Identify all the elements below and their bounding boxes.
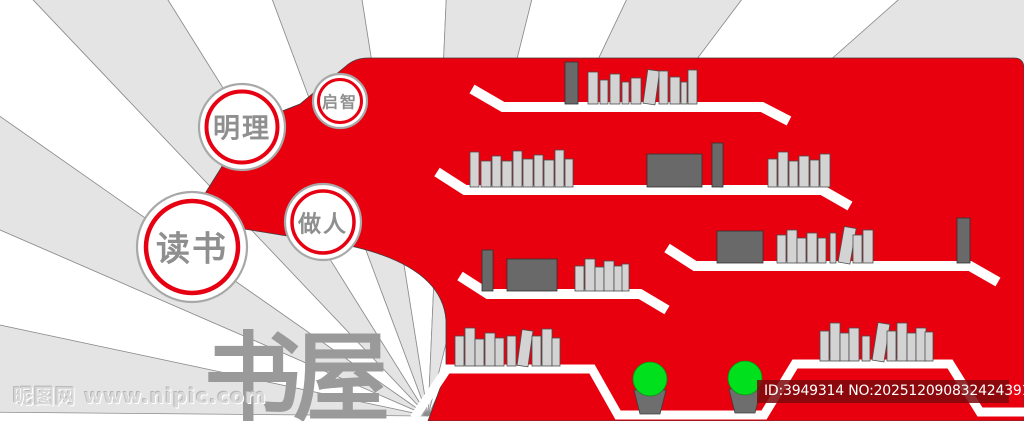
book [604, 261, 614, 291]
book [481, 161, 491, 187]
book [787, 230, 797, 263]
book [830, 233, 836, 263]
book [820, 331, 829, 361]
book [807, 233, 817, 263]
book [495, 338, 504, 366]
book [659, 71, 668, 104]
culture-wall-design: 读书 明理 做人 启智 书屋 昵图网 www.nipic.com ID:3949… [0, 0, 1024, 421]
book [907, 333, 916, 361]
book [475, 339, 484, 366]
book [513, 151, 522, 187]
book [797, 238, 806, 263]
book-dark [565, 62, 578, 104]
watermark: 昵图网 www.nipic.com [13, 380, 267, 409]
book [595, 267, 604, 291]
book [853, 235, 862, 263]
book [544, 160, 554, 187]
book [688, 70, 697, 104]
badge-label-dushu: 读书 [156, 222, 228, 271]
book [465, 328, 475, 366]
book [532, 336, 541, 366]
book [534, 155, 543, 187]
image-id-badge: ID:3949314 NO:20251209083242439108 [757, 380, 1009, 403]
book [849, 328, 859, 361]
badge-label-qizhi: 启智 [322, 89, 358, 113]
book [799, 156, 809, 187]
book [778, 152, 788, 187]
book [622, 264, 629, 291]
book [455, 336, 464, 366]
plant-foliage [633, 362, 667, 396]
book [507, 336, 516, 366]
book [818, 238, 826, 263]
book [542, 329, 552, 366]
book [622, 82, 629, 104]
book-dark [647, 154, 702, 187]
book [916, 328, 926, 361]
book [810, 160, 819, 187]
badge-label-zuoren: 做人 [298, 204, 348, 238]
book [485, 333, 495, 366]
book [887, 331, 896, 361]
book [610, 74, 620, 104]
wall-artwork-canvas [0, 0, 1024, 421]
book [502, 161, 512, 187]
book [789, 161, 798, 187]
book-dark [482, 250, 493, 291]
book [552, 338, 560, 366]
book-dark [717, 231, 763, 263]
book [777, 235, 786, 263]
book-dark [507, 259, 557, 291]
book-dark [957, 218, 970, 263]
book [840, 333, 849, 361]
book [768, 159, 777, 187]
book [862, 336, 870, 361]
book [588, 72, 598, 104]
book [565, 159, 573, 187]
book [600, 80, 608, 104]
book [925, 332, 933, 361]
book-dark [712, 143, 723, 187]
book [863, 230, 873, 263]
book [897, 323, 907, 361]
book [585, 259, 595, 291]
book [631, 78, 641, 104]
book [523, 159, 533, 187]
book [830, 323, 840, 361]
book [820, 154, 830, 187]
book [575, 266, 584, 291]
book [470, 152, 479, 187]
book [670, 77, 680, 104]
book [492, 156, 501, 187]
book [681, 82, 687, 104]
book [555, 150, 564, 187]
badge-label-mingli: 明理 [213, 107, 271, 146]
